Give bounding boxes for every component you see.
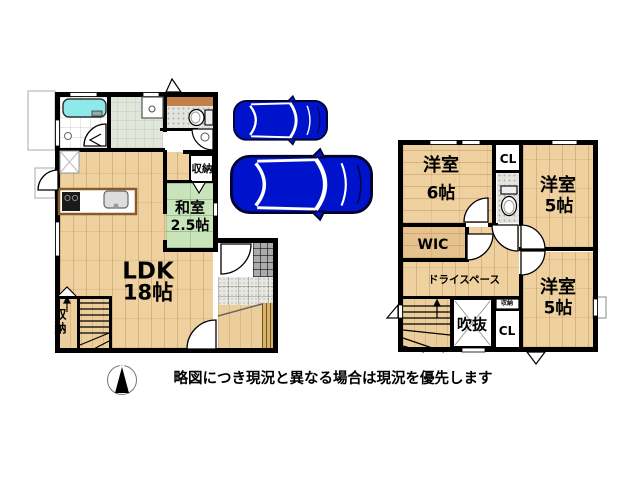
- bedroom6-label: 洋室: [423, 157, 459, 175]
- bedroom5-north-label: 洋室: [540, 177, 576, 195]
- disclaimer-caption: 略図につき現況と異なる場合は現況を優先します: [174, 372, 493, 387]
- kitchen-counter: [59, 189, 136, 214]
- floorplan-image: LDK 18帖 和室 2.5帖 収納 収納 洋室 6帖 洋室 5帖 洋室 5帖 …: [0, 0, 640, 480]
- compass-north-label: N: [119, 363, 125, 370]
- closet-south-label: CL: [499, 325, 515, 337]
- bedroom5-south-label: 洋室: [540, 279, 576, 297]
- refrigerator-space: [60, 151, 79, 173]
- compass-icon: [108, 366, 137, 395]
- stairs-2f: [403, 300, 450, 352]
- bathtub: [63, 99, 106, 117]
- toilet-icon-1f: [189, 110, 213, 126]
- storage-east-label: 収納: [192, 164, 213, 175]
- plan-linework: [0, 0, 640, 480]
- void-label: 吹抜: [457, 318, 487, 333]
- corner-basin-icon: [192, 129, 213, 150]
- bedroom5-north-size: 5帖: [545, 199, 574, 216]
- room-ldk-size: 18帖: [123, 283, 173, 304]
- stairs-1f: [64, 297, 109, 352]
- shower-drain-icon: [65, 133, 72, 140]
- storage-stairs-label: 収納: [54, 308, 66, 336]
- closet-north-label: CL: [500, 153, 516, 165]
- car-large-icon: [231, 149, 371, 220]
- wic-label: WIC: [418, 238, 449, 252]
- room-washitsu-size: 2.5帖: [171, 219, 210, 233]
- storage-small-label: 収納: [501, 301, 513, 307]
- entrance-step-edge: [218, 304, 262, 316]
- washbasin-unit: [142, 97, 163, 118]
- bedroom5-south-size: 5帖: [544, 301, 573, 318]
- toilet-icon-2f: [501, 186, 517, 216]
- dry-space-label: ドライスペース: [428, 275, 500, 286]
- bedroom6-size: 6帖: [427, 186, 456, 203]
- room-washitsu-label: 和室: [175, 201, 205, 216]
- car-small-icon: [234, 96, 327, 145]
